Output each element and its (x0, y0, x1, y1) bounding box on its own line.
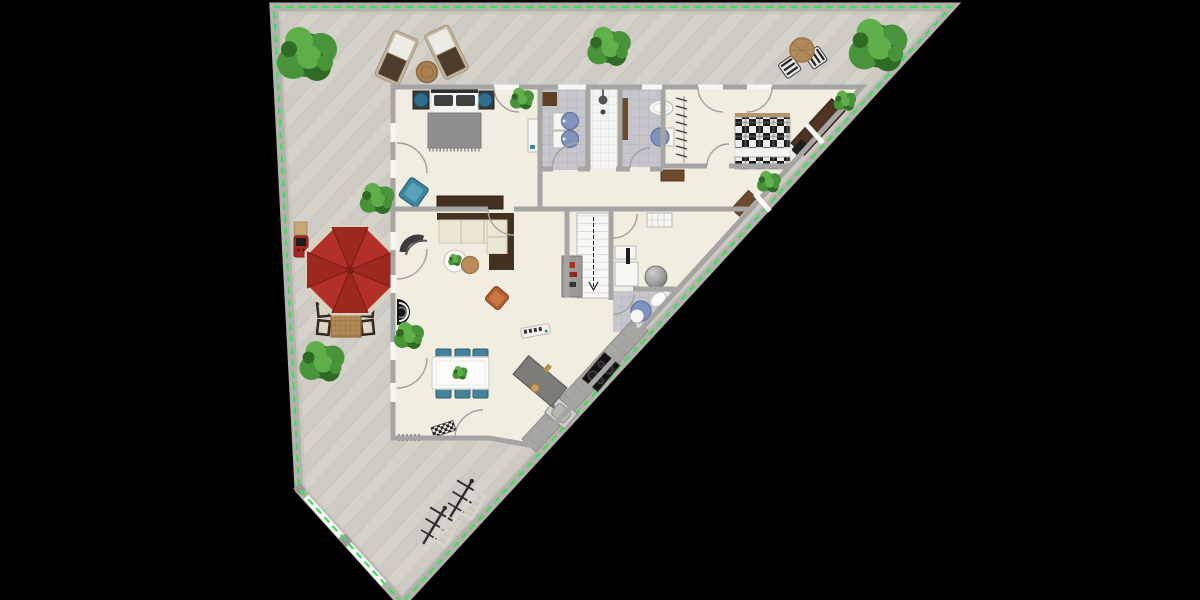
dining-chair[interactable] (455, 389, 470, 398)
shower-head[interactable] (599, 96, 608, 105)
bowl (531, 384, 539, 392)
gray-blanket (428, 113, 481, 148)
basin-stand (631, 310, 644, 323)
plaid-double-bed[interactable] (735, 113, 790, 169)
table-lamp-left[interactable] (414, 93, 428, 107)
pillow (434, 95, 453, 106)
faucet (563, 120, 566, 123)
dressing-stool (530, 145, 535, 149)
double-bed[interactable] (428, 89, 481, 150)
table-lamp-right[interactable] (478, 93, 492, 107)
runner-rug-1[interactable] (661, 170, 684, 181)
office-desk[interactable] (615, 262, 638, 286)
monitor (626, 248, 630, 264)
parasol-pole (346, 266, 354, 274)
storage-box[interactable] (294, 222, 307, 235)
round-side-table[interactable] (417, 62, 438, 83)
ball-chair[interactable] (645, 266, 667, 288)
sofa-ottoman (489, 254, 514, 270)
red-parasol[interactable] (307, 227, 393, 313)
desk-return[interactable] (615, 246, 636, 259)
washbasin[interactable] (651, 128, 669, 146)
floor-drain (601, 110, 606, 115)
wicker-chair-2[interactable] (316, 319, 330, 335)
floor-plan-canvas (0, 0, 1200, 600)
wicker-chair-4[interactable] (360, 319, 374, 335)
side-table[interactable] (462, 257, 479, 274)
dining-chair[interactable] (473, 389, 488, 398)
pillow (456, 95, 475, 106)
dining-chair[interactable] (436, 389, 451, 398)
faucet (563, 138, 566, 141)
